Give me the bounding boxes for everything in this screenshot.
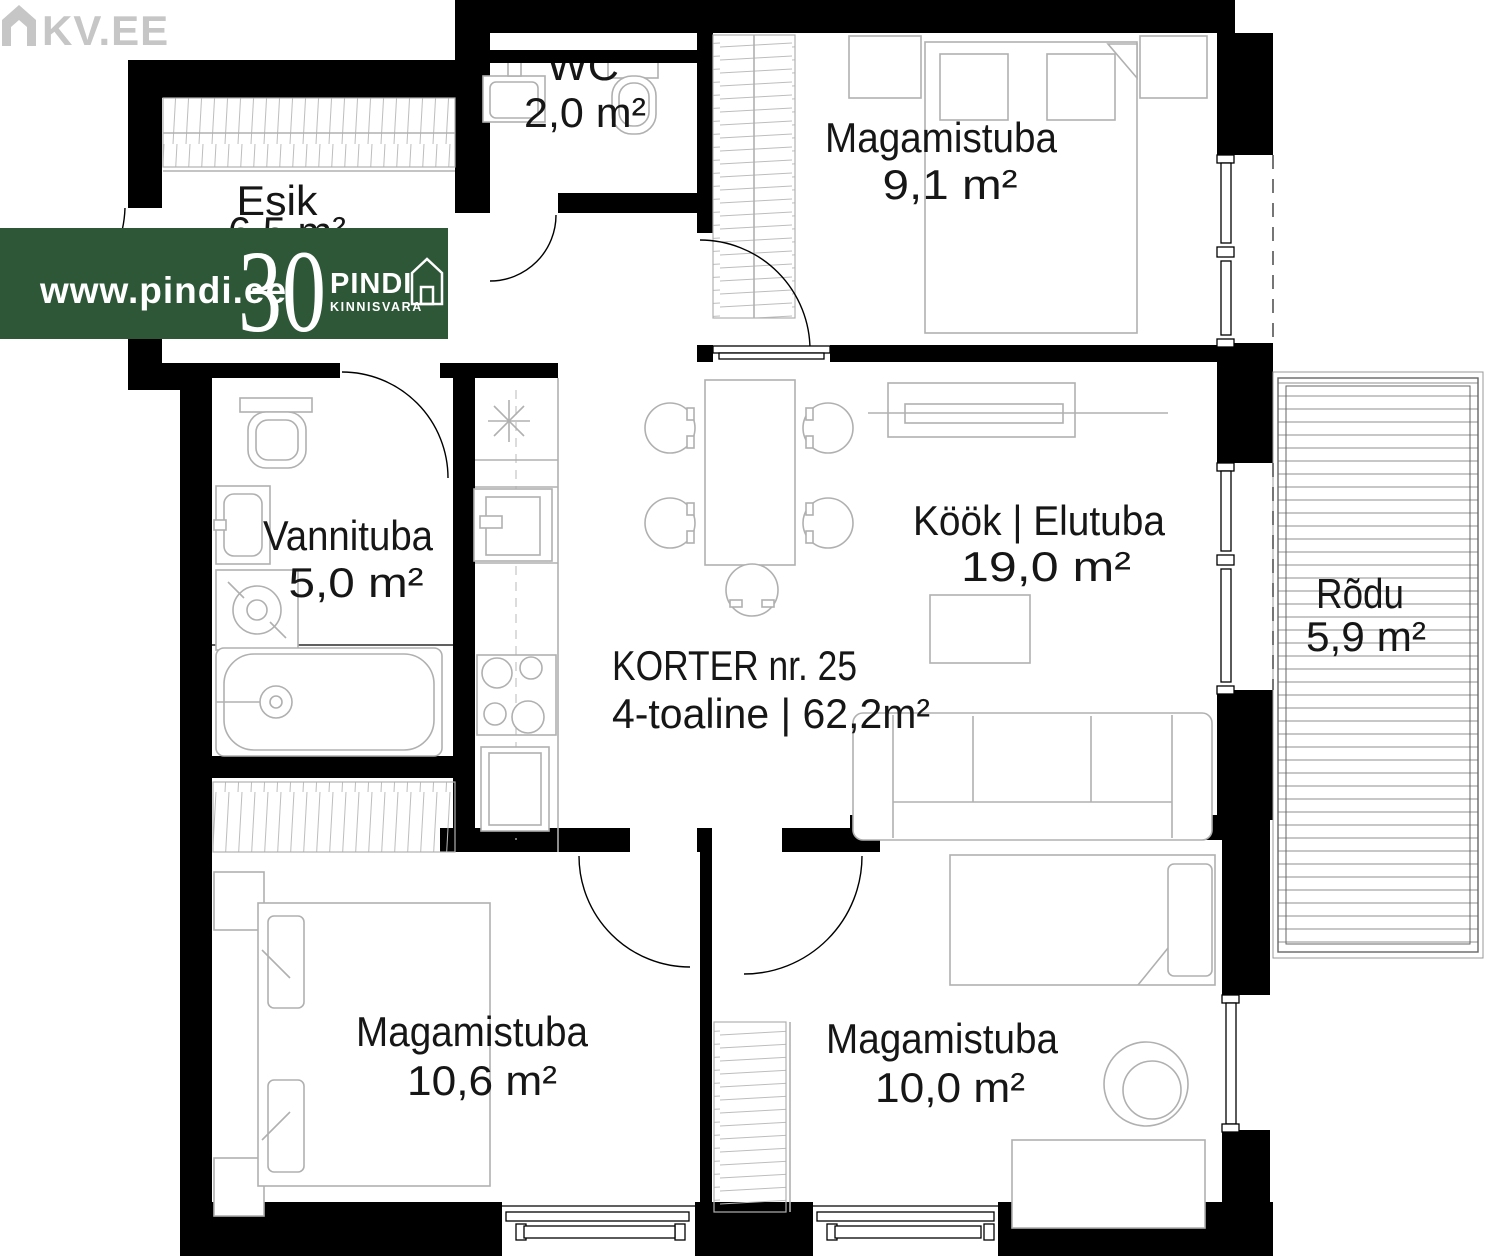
area-kook-elutuba: 19,0 m² bbox=[961, 543, 1131, 590]
dining-table-icon bbox=[645, 380, 853, 616]
wc-duct-wall bbox=[468, 50, 698, 63]
balcony-door-window bbox=[1217, 463, 1234, 694]
bathroom-door-arc bbox=[342, 372, 448, 478]
wardrobe-icon bbox=[213, 782, 455, 852]
window-bedroom3 bbox=[813, 1206, 998, 1240]
banner-years: 30 bbox=[238, 226, 326, 357]
area-magamistuba-3: 10,0 m² bbox=[875, 1064, 1025, 1111]
window-bedroom2 bbox=[502, 1206, 695, 1240]
floor-plan-drawing: Esik 6,5 m² WC 2,0 m² Magamistuba 9,1 m²… bbox=[0, 0, 1489, 1256]
banner-brand-sub: KINNISVARA bbox=[330, 300, 423, 314]
bedroom2-furniture bbox=[213, 782, 490, 1216]
window-bedroom1 bbox=[1217, 155, 1234, 347]
coffee-table-icon bbox=[930, 595, 1030, 663]
apartment-title: KORTER nr. 25 bbox=[612, 642, 857, 689]
hallway-wardrobe-icon bbox=[163, 98, 455, 171]
area-vannituba: 5,0 m² bbox=[289, 559, 424, 606]
washing-machine-icon bbox=[216, 570, 298, 650]
banner-brand: PINDI bbox=[330, 268, 412, 300]
label-magamistuba-2: Magamistuba bbox=[356, 1008, 589, 1055]
label-kook-elutuba: Köök | Elutuba bbox=[913, 497, 1166, 544]
apartment-subtitle: 4-toaline | 62,2m² bbox=[612, 690, 930, 737]
area-wc: 2,0 m² bbox=[524, 89, 646, 136]
bedroom2-door-arc bbox=[579, 856, 690, 967]
bedroom3-door-arc bbox=[744, 856, 862, 974]
pindi-banner: www.pindi.ee 30 PINDI KINNISVARA bbox=[0, 226, 448, 357]
label-magamistuba-3: Magamistuba bbox=[826, 1015, 1059, 1062]
label-vannituba: Vannituba bbox=[263, 512, 434, 559]
label-wc: WC bbox=[547, 42, 619, 89]
bathtub-icon bbox=[216, 648, 442, 756]
window-bedroom3-side bbox=[1222, 995, 1239, 1132]
corridor-closet-icon bbox=[713, 35, 795, 318]
balcony-deck bbox=[1273, 155, 1483, 958]
sliding-door bbox=[713, 346, 830, 353]
wc-door-arc bbox=[490, 215, 556, 281]
kv-logo: KV.EE bbox=[2, 5, 169, 54]
kitchen-units-icon bbox=[474, 378, 558, 852]
area-rodu: 5,9 m² bbox=[1306, 613, 1426, 660]
area-magamistuba-1: 9,1 m² bbox=[883, 161, 1018, 208]
area-magamistuba-2: 10,6 m² bbox=[407, 1057, 557, 1104]
tv-bench-icon bbox=[868, 383, 1168, 437]
floor-plan-page: Esik 6,5 m² WC 2,0 m² Magamistuba 9,1 m²… bbox=[0, 0, 1489, 1256]
wardrobe-icon bbox=[714, 1022, 786, 1212]
desk-icon bbox=[1012, 1140, 1205, 1228]
label-rodu: Rõdu bbox=[1316, 570, 1404, 617]
toilet-icon bbox=[240, 398, 312, 412]
kv-logo-text: KV.EE bbox=[42, 7, 169, 54]
label-magamistuba-1: Magamistuba bbox=[825, 114, 1058, 161]
